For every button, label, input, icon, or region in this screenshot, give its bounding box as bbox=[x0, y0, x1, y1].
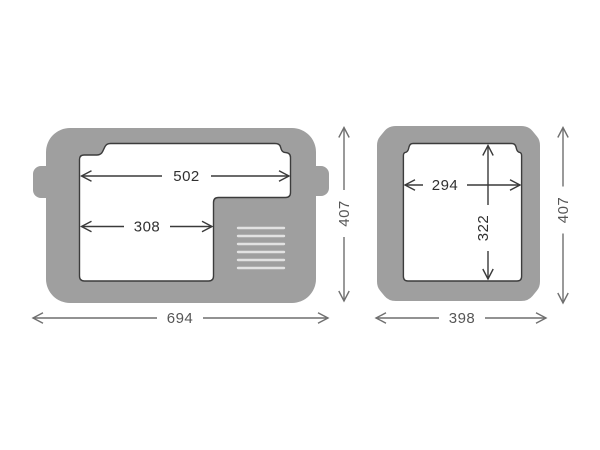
dim-label-407-side: 407 bbox=[336, 200, 353, 227]
front-view-interior bbox=[403, 144, 521, 282]
dim-label-694: 694 bbox=[167, 310, 194, 327]
dim-label-294: 294 bbox=[432, 177, 459, 194]
side-view bbox=[33, 128, 329, 303]
dim-overall-width-side: 694 bbox=[33, 310, 328, 327]
dim-overall-height-front: 407 bbox=[555, 128, 572, 304]
dim-label-407-front: 407 bbox=[555, 197, 572, 224]
dim-label-322: 322 bbox=[475, 215, 492, 242]
dim-overall-width-front: 398 bbox=[376, 310, 546, 327]
dimension-diagram: 502 308 294 322 694 bbox=[0, 0, 600, 450]
front-view bbox=[377, 126, 540, 301]
dim-label-308: 308 bbox=[134, 219, 161, 236]
diagram-svg: 502 308 294 322 694 bbox=[0, 0, 600, 450]
dim-overall-height-side: 407 bbox=[336, 128, 353, 302]
dim-label-398: 398 bbox=[449, 310, 476, 327]
dim-label-502: 502 bbox=[173, 168, 200, 185]
